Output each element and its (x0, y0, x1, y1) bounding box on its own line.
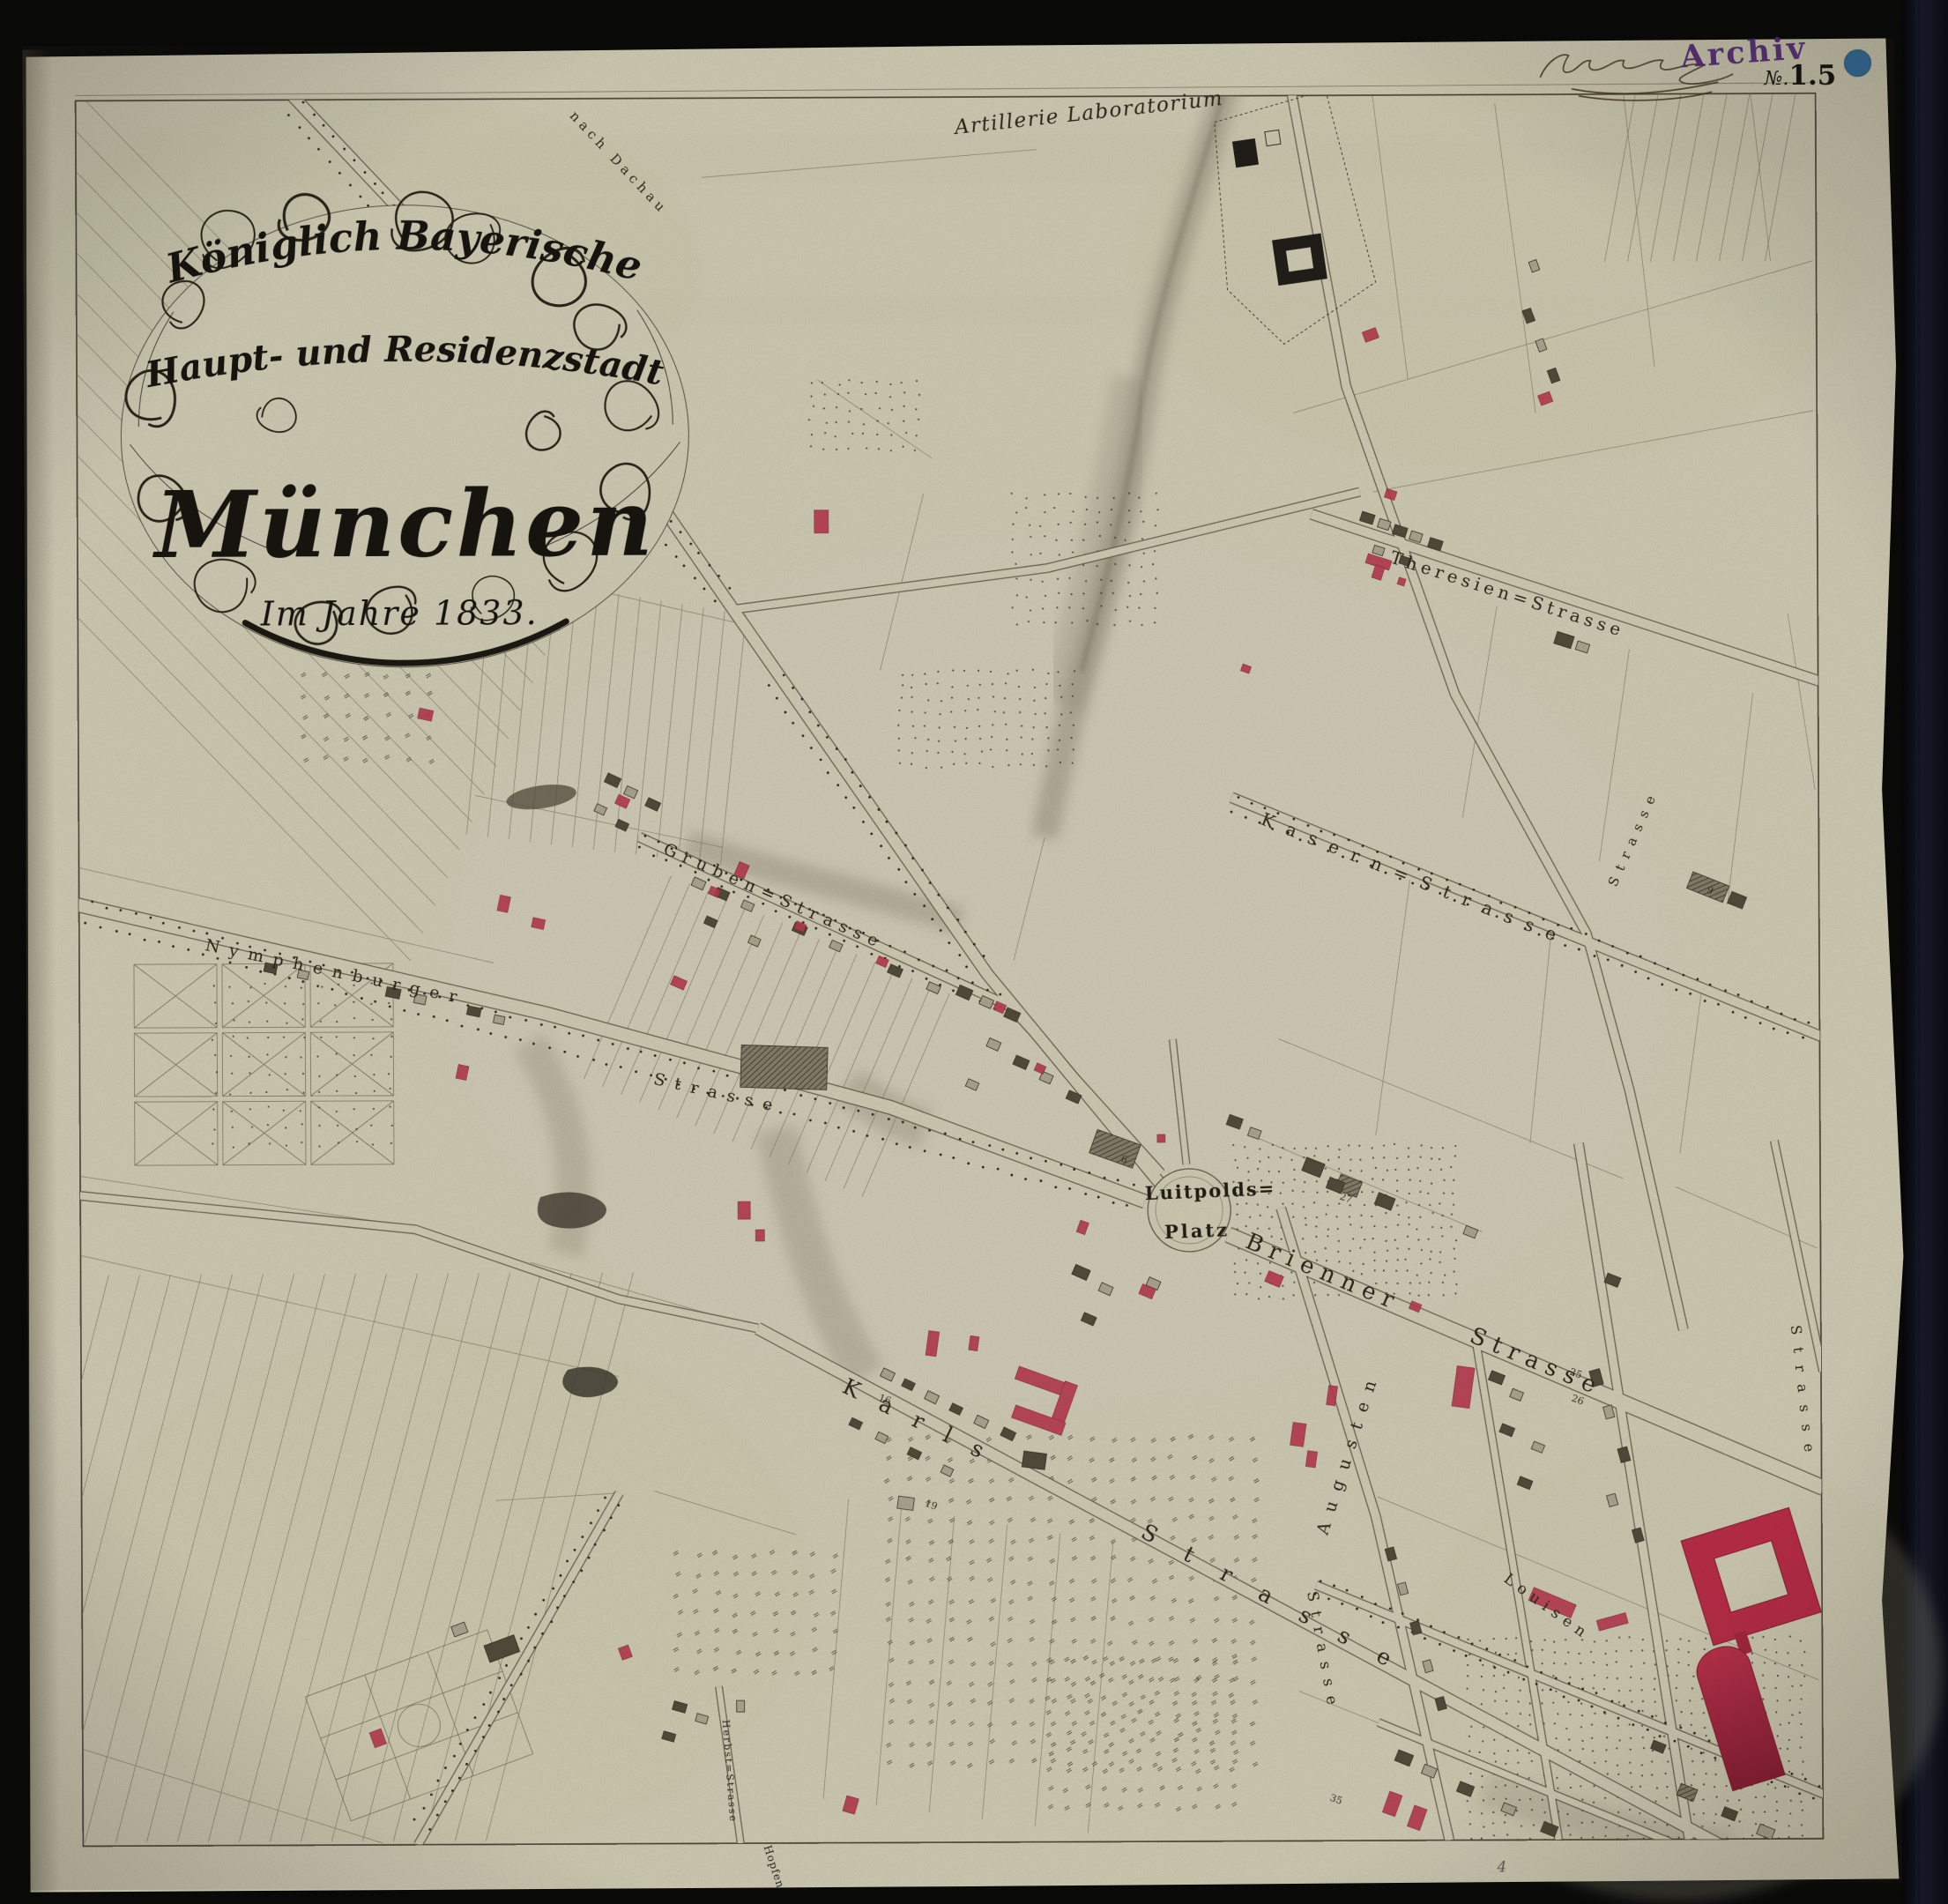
munich-1833-map-scan: Artillerie LaboratoriumLuitpolds=PlatzBr… (0, 0, 1948, 1904)
map-sheet: Artillerie LaboratoriumLuitpolds=PlatzBr… (0, 29, 1944, 1904)
vignette (22, 38, 1902, 1890)
